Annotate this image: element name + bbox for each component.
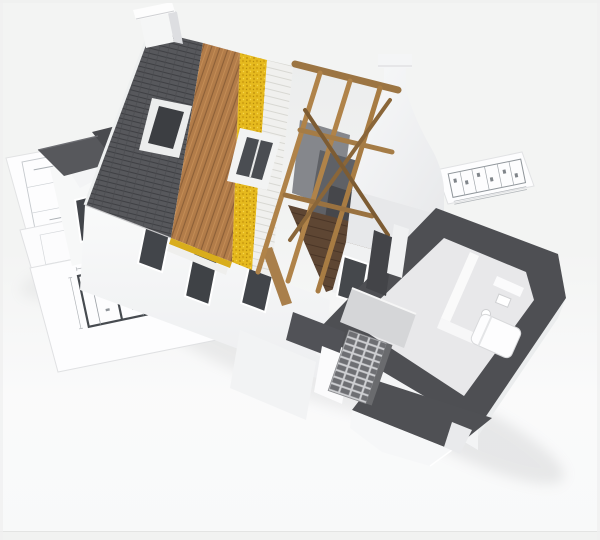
left-strip xyxy=(0,0,3,540)
rendered-scene: 3D architectural rendering of a house un… xyxy=(0,0,600,540)
bottom-strip xyxy=(0,532,600,540)
screenshot-root: 3D architectural rendering of a house un… xyxy=(0,0,600,540)
top-strip xyxy=(0,0,600,3)
